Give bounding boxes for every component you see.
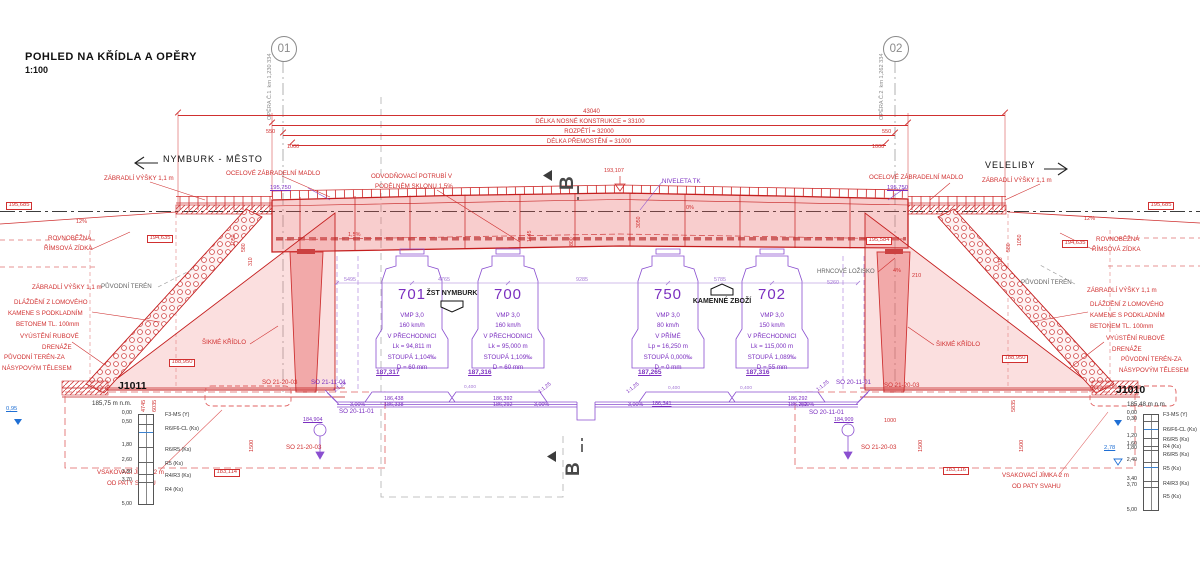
borehole-water-line [1144, 467, 1158, 468]
borehole-layer-line [1144, 487, 1158, 488]
dimension-label: DÉLKA NOSNÉ KONSTRUKCE = 33100 [533, 119, 646, 125]
formation-level: 186,292 [493, 403, 513, 408]
track-data-line: 160 km/h [453, 322, 563, 329]
track-number: 700 [453, 286, 563, 303]
borehole-layer-line [139, 462, 153, 463]
original-terrain: PŮVODNÍ TERÉN [101, 284, 152, 290]
borehole-layer: R4/R3 (Ks) [165, 474, 191, 479]
drawing-linework [0, 0, 1200, 566]
dim-v: 580 [242, 243, 247, 252]
dimension-row: DÉLKA PŘEMOSTĚNÍ = 31000 [292, 145, 886, 146]
level-box: 195,584 [866, 237, 892, 245]
track-data-line: D = 60 mm [357, 364, 467, 371]
track-data-line: V PŘECHODNICI [717, 333, 827, 340]
track-level: 187,265 [638, 370, 662, 377]
soak-pit-right-1: VSAKOVACÍ JÍMKA 2 m [1002, 473, 1069, 479]
drain-outlet-right-1: VYÚSTĚNÍ RUBOVÉ [1106, 336, 1165, 342]
drawing-sheet: POHLED NA KŘÍDLA A OPĚRY1:100NYMBURK - M… [0, 0, 1200, 566]
dim-v: 1500 [919, 440, 925, 452]
bearing-label: HRNCOVÉ LOŽISKO [817, 269, 875, 275]
dimension-row: ROZPĚTÍ = 32000 [283, 135, 895, 136]
dim-v: 310 [249, 257, 254, 266]
borehole-layer-line [1144, 481, 1158, 482]
drain-level: 184,904 [303, 418, 323, 423]
borehole-depth: 5,00 [106, 502, 132, 507]
track-data-line: Lk = 115,000 m [717, 343, 827, 350]
railing-label-left: ZÁBRADLÍ VÝŠKY 1,1 m [104, 176, 174, 182]
so-object: SO 20-11-01 [339, 409, 374, 415]
dim-v: 580 [1007, 243, 1012, 252]
approach-railing-right [908, 196, 1006, 214]
track-level: 187,316 [746, 370, 770, 377]
track-info-702: 702VMP 3,0150 km/hV PŘECHODNICILk = 115,… [717, 286, 827, 374]
borehole-layer-line [1144, 438, 1158, 439]
rail-level: 195,750 [270, 186, 291, 192]
dim-v: 800 [570, 237, 575, 246]
dim: 1000 [884, 419, 896, 425]
borehole-layer: R6/F6-CL (Ks) [165, 427, 199, 432]
drawing-scale: 1:100 [25, 66, 48, 75]
borehole-depth: 3,70 [1111, 483, 1137, 488]
formation-level: 186,338 [384, 403, 404, 408]
so-object: SO 21-11-01 [311, 380, 346, 386]
axis-label: OPĚRA Č.2km 1,262 334 [879, 51, 886, 120]
level-tk: 193,107 [604, 169, 624, 175]
borehole-layer: R4 (Ks) [165, 488, 183, 493]
dimension-row: 43040 [178, 115, 1005, 116]
borehole-layer-line [1144, 462, 1158, 463]
borehole-depth: 1,20 [1111, 434, 1137, 439]
dim: 9285 [576, 278, 588, 283]
terrain-behind-right-2: NÁSYPOVÝM TĚLESEM [1119, 368, 1189, 374]
so-object: SO 21-20-03 [262, 380, 297, 386]
dim-v: 5835 [1012, 400, 1018, 412]
dim: 0,400 [740, 387, 752, 392]
axis-mark-02: 02 [883, 36, 909, 62]
dim: 5260 [827, 281, 839, 286]
cornice-wall-right-1: ROVNOBĚŽNÁ [1096, 237, 1139, 243]
terrain-behind-left-2: NÁSYPOVÝM TĚLESEM [2, 366, 72, 372]
approach-railing-left [176, 196, 272, 214]
level-box: 195,685 [1148, 202, 1174, 210]
drainpipe-label-2: PODÉLNÉM SKLONU 1,5% [375, 184, 453, 190]
dim: 4765 [438, 278, 450, 283]
paving-left-2: KAMENE S PODKLADNÍM [8, 311, 83, 317]
dim-v: 3050 [637, 216, 642, 228]
slope-3pct: 3,00% [628, 403, 643, 408]
track-data-line: 160 km/h [357, 322, 467, 329]
dim: 550 [266, 130, 275, 136]
track-data-line: 150 km/h [717, 322, 827, 329]
axis-label: OPĚRA Č.1km 1,230 334 [267, 51, 274, 120]
borehole-elevation: 185,75 m n.m. [92, 401, 132, 407]
track-number: 702 [717, 286, 827, 303]
borehole-layer-line [139, 482, 153, 483]
dim-v: 1050 [1018, 234, 1023, 246]
so-object: SO 20-11-01 [809, 410, 844, 416]
borehole-layer: R5 (Ks) [1163, 467, 1181, 472]
borehole-column [1143, 414, 1159, 511]
borehole-depth: 1,80 [1111, 446, 1137, 451]
track-data-line: V PŘECHODNICI [453, 333, 563, 340]
footings [62, 381, 1176, 476]
section-mark-b-bottom: B [564, 462, 583, 476]
dim: 5495 [344, 278, 356, 283]
track-data-line: V PŘÍMÉ [613, 333, 723, 340]
dimension-label: DÉLKA PŘEMOSTĚNÍ = 31000 [545, 139, 633, 145]
paving-right-3: BETONEM TL. 100mm [1090, 324, 1153, 330]
level-box: 194,635 [147, 235, 173, 243]
so-object: SO 20-11-01 [836, 380, 871, 386]
level-box: 183,114 [214, 469, 240, 477]
slope-0: 0% [686, 206, 694, 212]
paving-right-1: DLÁŽDĚNÍ Z LOMOVÉHO [1090, 302, 1164, 308]
dim: 1000 [287, 145, 299, 151]
borehole-depth: 3,70 [106, 478, 132, 483]
track-data-line: VMP 3,0 [357, 312, 467, 319]
track-level: 187,316 [468, 370, 492, 377]
formation-level: 186,341 [652, 402, 672, 407]
dim: 210 [912, 274, 921, 280]
so-object: SO 21-20-03 [884, 383, 919, 389]
slope-12-left: 12% [76, 220, 87, 226]
track-data-line: STOUPÁ 0,000‰ [613, 354, 723, 361]
cornice-wall-right-2: ŘÍMSOVÁ ZÍDKA [1092, 247, 1140, 253]
track-data-line: Lp = 16,250 m [613, 343, 723, 350]
terrain-behind-left-1: PŮVODNÍ TERÉN-ZA [4, 355, 65, 361]
track-data-line: VMP 3,0 [453, 312, 563, 319]
track-info-750: 750VMP 3,080 km/hV PŘÍMÉLp = 16,250 mSTO… [613, 286, 723, 374]
bridge-deck [272, 185, 908, 252]
track-number: 750 [613, 286, 723, 303]
level-box: 188,950 [169, 359, 195, 367]
dim-v: 1500 [250, 440, 256, 452]
track-level: 187,317 [376, 370, 400, 377]
borehole-depth: 5,00 [1111, 508, 1137, 513]
direction-arrow-right-icon [1044, 163, 1067, 175]
dim-v: 4745 [142, 400, 148, 412]
so-object: SO 21-20-03 [861, 445, 896, 451]
borehole-centerline [146, 415, 147, 504]
skew-wing-left: ŠIKMÉ KŘÍDLO [202, 340, 246, 346]
borehole-layer: R6/R5 (Ks) [1163, 453, 1189, 458]
borehole-layer: F3-MS (Y) [165, 413, 189, 418]
borehole-elevation: 185,48 m n.m. [1127, 402, 1167, 408]
axis-label-line: km 1,262 334 [879, 54, 886, 88]
track-info-701: 701VMP 3,0160 km/hV PŘECHODNICILk = 94,8… [357, 286, 467, 374]
direction-arrow-left-icon [135, 157, 158, 169]
slope-15: 1,5% [348, 233, 361, 239]
direction-left: NYMBURK - MĚSTO [163, 155, 263, 164]
slope-4: 4% [893, 269, 901, 275]
borehole-layer: R5 (Ks) [165, 462, 183, 467]
original-terrain: PŮVODNÍ TERÉN [1021, 280, 1072, 286]
borehole-water-line [1144, 429, 1158, 430]
drain-level: 184,909 [834, 418, 854, 423]
borehole-depth: 0,00 [106, 411, 132, 416]
drawing-title: POHLED NA KŘÍDLA A OPĚRY [25, 52, 197, 63]
dim: 550 [882, 130, 891, 136]
dimension-label: ROZPĚTÍ = 32000 [562, 129, 616, 135]
borehole-layer: R4 (Ks) [1163, 445, 1181, 450]
level-box: 195,685 [6, 202, 32, 210]
track-info-700: 700VMP 3,0160 km/hV PŘECHODNICILk = 95,0… [453, 286, 563, 374]
slope-3pct: 3,00% [799, 403, 814, 408]
paving-left-3: BETONEM TL. 100mm [16, 322, 79, 328]
borehole-layer-line [1144, 421, 1158, 422]
borehole-depth: 3,30 [106, 470, 132, 475]
track-data-line: D = 0 mm [613, 364, 723, 371]
niveleta-tk: NIVELETA TK [662, 179, 701, 185]
borehole-layer: R4/R3 (Ks) [1163, 482, 1189, 487]
borehole-depth: 2,40 [1111, 458, 1137, 463]
terrain-behind-right-1: PŮVODNÍ TERÉN-ZA [1121, 357, 1182, 363]
handrail-label-right: OCELOVÉ ZÁBRADELNÍ MADLO [869, 175, 963, 181]
dim: 1000 [872, 145, 884, 151]
borehole-layer: R6/F6-CL (Ks) [1163, 428, 1197, 433]
track-data-line: Lk = 94,811 m [357, 343, 467, 350]
borehole-layer: F3-MS (Y) [1163, 413, 1187, 418]
borehole-layer: R6/R5 (Ks) [1163, 438, 1189, 443]
borehole-depth: 1,80 [106, 443, 132, 448]
track-data-line: STOUPÁ 1,109‰ [453, 354, 563, 361]
dim-v: 310 [999, 257, 1004, 266]
drain-outlet-right-2: DRENÁŽE [1112, 347, 1142, 353]
railing-label-left-2: ZÁBRADLÍ VÝŠKY 1,1 m [32, 285, 102, 291]
rail-level: 195,750 [887, 186, 908, 192]
slope-3pct: 3,00% [534, 403, 549, 408]
dim: 0,400 [668, 387, 680, 392]
soak-pit-right-2: OD PATY SVAHU [1012, 484, 1061, 490]
borehole-depth: 2,60 [106, 458, 132, 463]
track-data-line: STOUPÁ 1,089‰ [717, 354, 827, 361]
borehole-layer: R6/R5 (Ks) [165, 448, 191, 453]
skew-wing-right: ŠIKMÉ KŘÍDLO [936, 342, 980, 348]
track-data-line: STOUPÁ 1,104‰ [357, 354, 467, 361]
borehole-layer-line [1144, 450, 1158, 451]
section-mark-b-top: B [558, 176, 577, 190]
dim-v: 1050 [232, 234, 237, 246]
level-box: 194,635 [1062, 240, 1088, 248]
level-box: 188,950 [1002, 355, 1028, 363]
cornice-wall-left-2: ŘÍMSOVÁ ZÍDKA [44, 246, 92, 252]
paving-right-2: KAMENE S PODKLADNÍM [1090, 313, 1165, 319]
track-data-line: D = 55 mm [717, 364, 827, 371]
borehole-column [138, 414, 154, 505]
track-data-line: Lk = 95,000 m [453, 343, 563, 350]
so-object: SO 21-20-03 [286, 445, 321, 451]
drain-outlet-left-1: VYÚSTĚNÍ RUBOVÉ [20, 334, 79, 340]
railing-label-right-2: ZÁBRADLÍ VÝŠKY 1,1 m [1087, 288, 1157, 294]
dim: 0,400 [464, 386, 476, 391]
cornice-wall-left-1: ROVNOBĚŽNÁ [48, 236, 91, 242]
borehole-title: J1011 [118, 381, 147, 392]
drain-outlet-left-2: DRENÁŽE [42, 345, 72, 351]
dim-v: 1500 [1020, 440, 1026, 452]
dim-v: 1645 [528, 230, 533, 242]
borehole-layer-line [139, 447, 153, 448]
dimension-row: DÉLKA NOSNÉ KONSTRUKCE = 33100 [272, 125, 908, 126]
axis-mark-01: 01 [271, 36, 297, 62]
dim-v: 6035 [153, 400, 159, 412]
borehole-layer-line [1144, 446, 1158, 447]
dimension-label: 43040 [581, 109, 602, 115]
direction-right: VELELIBY [985, 161, 1036, 170]
axis-label-line: km 1,230 334 [267, 54, 274, 88]
slope-12-right: 12% [1084, 217, 1095, 223]
track-data-line: V PŘECHODNICI [357, 333, 467, 340]
track-data-line: VMP 3,0 [613, 312, 723, 319]
track-number: 701 [357, 286, 467, 303]
paving-left-1: DLÁŽDĚNÍ Z LOMOVÉHO [14, 300, 88, 306]
borehole-depth: 0,30 [1111, 417, 1137, 422]
borehole-title: J1010 [1116, 385, 1145, 396]
track-data-line: VMP 3,0 [717, 312, 827, 319]
handrail-label-left: OCELOVÉ ZÁBRADELNÍ MADLO [226, 171, 320, 177]
drainpipe-label-1: ODVODŇOVACÍ POTRUBÍ V [371, 174, 452, 180]
groundwater-depth: 0,95 [6, 407, 17, 413]
track-data-line: 80 km/h [613, 322, 723, 329]
dim: 5785 [714, 278, 726, 283]
borehole-depth: 0,50 [106, 420, 132, 425]
level-box: 183,116 [943, 467, 969, 475]
borehole-layer-line [139, 424, 153, 425]
railing-label-right: ZÁBRADLÍ VÝŠKY 1,1 m [982, 178, 1052, 184]
borehole-layer: R5 (Ks) [1163, 495, 1181, 500]
borehole-water-line [139, 432, 153, 433]
borehole-layer-line [139, 474, 153, 475]
